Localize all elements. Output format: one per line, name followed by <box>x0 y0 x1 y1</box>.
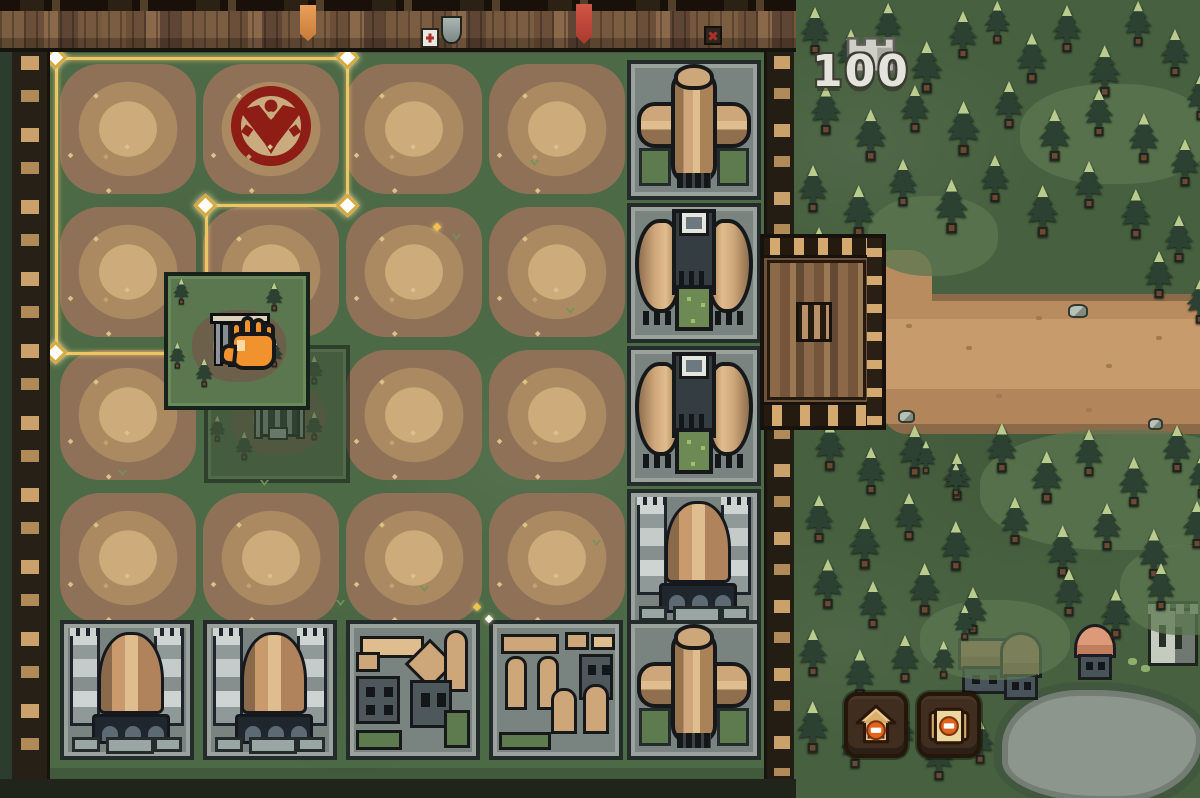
resource-counter: 100 <box>810 28 940 108</box>
toggle-scroll-markers-button[interactable] <box>917 692 981 758</box>
hud-layer: 100 <box>0 0 1200 798</box>
toggle-house-markers-button[interactable] <box>844 692 908 758</box>
house-minus-icon <box>853 702 899 748</box>
scroll-minus-icon <box>926 702 972 748</box>
resource-count: 100 <box>812 46 910 97</box>
hud-buttons <box>844 692 981 758</box>
game-scene: 100 <box>0 0 1200 798</box>
